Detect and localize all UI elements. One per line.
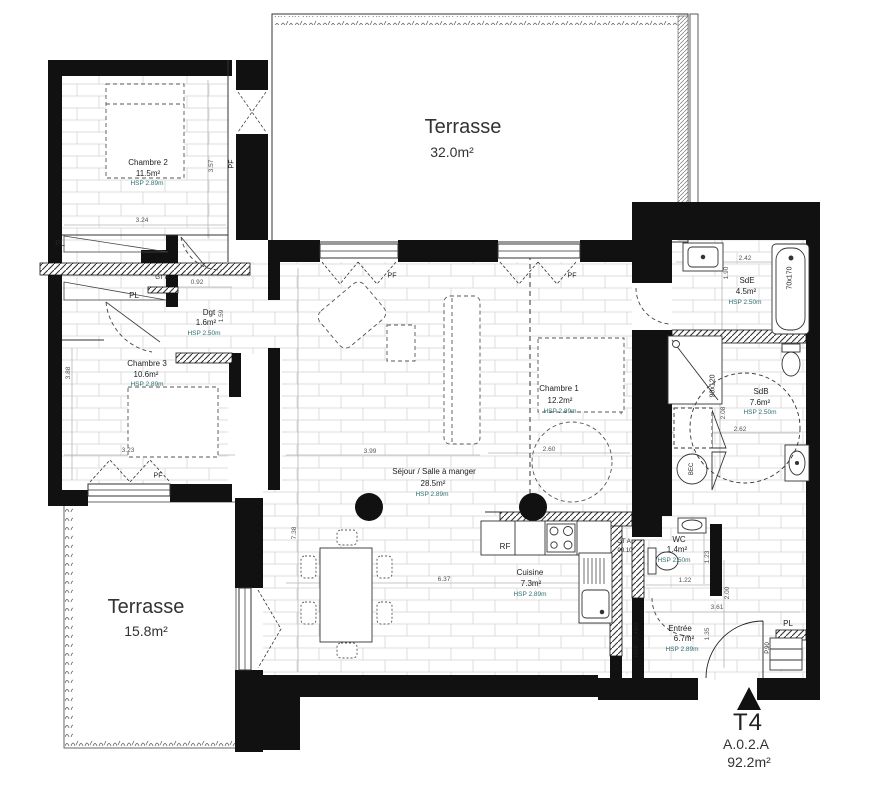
tag-rf: RF bbox=[500, 543, 511, 551]
tag-pf-2: PF bbox=[568, 273, 577, 280]
dim-3-99: 3.99 bbox=[364, 449, 377, 456]
hatchwall-wc-left bbox=[632, 540, 644, 598]
label-sejour-hsp: HSP 2.89m bbox=[415, 492, 448, 499]
chair bbox=[337, 530, 357, 545]
label-chambre3-area: 10.6m² bbox=[134, 371, 159, 379]
terrace-top-hedge bbox=[274, 16, 684, 25]
label-wc-area: 1.4m² bbox=[667, 546, 687, 554]
label-chambre2-name: Chambre 2 bbox=[128, 159, 168, 167]
label-chambre1-hsp: HSP 2.89m bbox=[543, 409, 576, 416]
wall-topright-block bbox=[632, 202, 820, 240]
column bbox=[355, 493, 383, 521]
unit-ref: A.0.2.A bbox=[723, 737, 769, 751]
dim-3-88: 3.88 bbox=[66, 367, 73, 380]
dim-3-23: 3.23 bbox=[122, 448, 135, 455]
tag-pf-4: PF bbox=[229, 160, 236, 169]
chair bbox=[337, 643, 357, 658]
chair bbox=[301, 602, 316, 624]
dining-table bbox=[320, 548, 372, 642]
label-chambre1-area: 12.2m² bbox=[548, 397, 573, 405]
label-chambre2-area: 11.5m² bbox=[136, 170, 160, 178]
tag-hsp-beam: HSP : 2.44m bbox=[634, 623, 640, 657]
label-sejour-area: 28.5m² bbox=[421, 480, 446, 488]
wall-terrace-top-b bbox=[170, 484, 232, 502]
terrace-bottom-hedge-bottom bbox=[65, 740, 237, 748]
tag-shower-size: 90x120 bbox=[710, 375, 717, 398]
dim-2-08: 2.08 bbox=[721, 407, 728, 420]
label-cuisine-area: 7.3m² bbox=[521, 580, 541, 588]
dim-1-23: 1.23 bbox=[705, 551, 712, 564]
dim-2-00: 2.00 bbox=[725, 587, 732, 600]
terrace-bottom-hedge-left bbox=[65, 504, 73, 742]
washing-machine bbox=[674, 408, 712, 448]
kitchen-sink bbox=[582, 590, 609, 618]
label-sejour-name: Séjour / Salle à manger bbox=[392, 468, 476, 476]
label-cuisine-name: Cuisine bbox=[517, 569, 544, 577]
label-sdb-name: SdB bbox=[753, 388, 768, 396]
label-wc-name: WC bbox=[672, 536, 685, 544]
chair bbox=[377, 602, 392, 624]
dim-1-90: 1.90 bbox=[724, 267, 731, 280]
wall-bottom-a bbox=[598, 678, 698, 700]
dim-3-57: 3.57 bbox=[209, 160, 216, 173]
hatchwall-pl bbox=[40, 263, 250, 275]
label-chambre3-hsp: HSP 2.89m bbox=[130, 382, 163, 389]
floor-plan: Terrasse 32.0m² Terrasse 15.8m² Chambre … bbox=[0, 0, 875, 800]
wall-wc-corner bbox=[632, 515, 662, 537]
unit-total-area: 92.2m² bbox=[727, 755, 771, 769]
tag-pf-3: PF bbox=[154, 473, 163, 480]
wall-sejour-bottom bbox=[263, 675, 598, 697]
tag-pf-1: PF bbox=[388, 273, 397, 280]
hatchwall-dgt bbox=[176, 353, 232, 363]
dim-6-37: 6.37 bbox=[438, 577, 451, 584]
tag-gta-2: GT A bbox=[617, 539, 631, 545]
wall-right-exterior-lower bbox=[806, 536, 820, 680]
bed-chambre3 bbox=[128, 387, 218, 457]
tag-gta-2-num: 00.10 bbox=[617, 548, 632, 554]
label-terrasse-bottom-name: Terrasse bbox=[108, 597, 185, 617]
wall-chambre2-right-lower bbox=[236, 134, 268, 240]
label-dgt-area: 1.6m² bbox=[196, 319, 216, 327]
wall-sejour-left-a bbox=[268, 262, 280, 300]
label-sdb-hsp: HSP 2.50m bbox=[743, 410, 776, 417]
toilet-tank-sdb bbox=[782, 344, 800, 352]
dim-0-92: 0.92 bbox=[191, 280, 204, 287]
label-cuisine-hsp: HSP 2.89m bbox=[513, 592, 546, 599]
label-chambre2-hsp: HSP 2.89m bbox=[130, 181, 163, 188]
dim-2-60: 2.60 bbox=[543, 447, 556, 454]
hatchwall-gta bbox=[148, 287, 178, 293]
tag-bec: BEC bbox=[689, 463, 695, 475]
tag-pl-1: PL bbox=[55, 240, 65, 248]
wall-chambre2-top bbox=[48, 60, 232, 76]
wall-terrace-right-a bbox=[235, 498, 263, 588]
dim-2-42: 2.42 bbox=[739, 256, 752, 263]
label-entree-area: 6.7m² bbox=[674, 635, 694, 643]
tag-door-ref: P.90 bbox=[765, 642, 771, 654]
dim-3-61: 3.61 bbox=[711, 605, 724, 612]
tag-pl-2: PL bbox=[129, 292, 139, 300]
label-sde-name: SdE bbox=[739, 277, 754, 285]
entree-closet bbox=[770, 638, 802, 670]
label-wc-hsp: HSP 2.50m bbox=[657, 558, 690, 565]
tag-pl-3: PL bbox=[783, 620, 793, 628]
wall-sejour-top-b bbox=[398, 240, 498, 262]
wall-chambre2-right-upper bbox=[236, 60, 268, 90]
terrace-top-right-edge bbox=[690, 14, 698, 204]
wall-sejour-left-b bbox=[268, 348, 280, 490]
label-terrasse-bottom-area: 15.8m² bbox=[124, 624, 168, 638]
wall-sejour-top-a bbox=[268, 240, 320, 262]
dim-1-35: 1.35 bbox=[705, 628, 712, 641]
wall-wc-right bbox=[710, 524, 722, 596]
column bbox=[519, 493, 547, 521]
wall-corner-chunk bbox=[263, 680, 300, 750]
sofa bbox=[444, 296, 480, 444]
dim-3-24: 3.24 bbox=[136, 218, 149, 225]
chair bbox=[301, 556, 316, 578]
unit-type: T4 bbox=[733, 711, 763, 735]
dim-2-62: 2.62 bbox=[734, 427, 747, 434]
toilet-sdb bbox=[782, 352, 800, 376]
label-terrasse-top-area: 32.0m² bbox=[430, 145, 474, 159]
wall-bottom-b bbox=[757, 678, 820, 700]
wall-terrace-right-b bbox=[235, 670, 263, 752]
wall-sde-left bbox=[632, 236, 672, 283]
label-sdb-area: 7.6m² bbox=[750, 399, 770, 407]
dim-1-59: 1.59 bbox=[219, 310, 226, 323]
label-dgt-hsp: HSP 2.50m bbox=[187, 331, 220, 338]
label-sde-hsp: HSP 2.50m bbox=[728, 300, 761, 307]
door-arc-sde bbox=[636, 288, 670, 324]
wall-terrace-top-a bbox=[48, 490, 88, 506]
label-terrasse-top-name: Terrasse bbox=[425, 117, 502, 137]
wc-toilet-tank bbox=[648, 548, 656, 574]
floor-sejour-west bbox=[263, 490, 283, 675]
tag-bathtub-size: 70x170 bbox=[787, 267, 794, 290]
label-chambre3-name: Chambre 3 bbox=[127, 360, 167, 368]
label-sde-area: 4.5m² bbox=[736, 288, 756, 296]
dim-1-22: 1.22 bbox=[679, 578, 692, 585]
label-dgt-name: Dgt bbox=[203, 309, 215, 317]
side-table bbox=[387, 325, 415, 361]
wall-column-chambre1-sdb bbox=[632, 330, 672, 516]
chair bbox=[377, 556, 392, 578]
label-chambre1-name: Chambre 1 bbox=[539, 385, 579, 393]
tag-gta-1: GT A bbox=[155, 275, 169, 281]
label-entree-name: Entrée bbox=[668, 625, 692, 633]
dim-7-38: 7.38 bbox=[292, 527, 299, 540]
label-entree-hsp: HSP 2.89m bbox=[665, 647, 698, 654]
